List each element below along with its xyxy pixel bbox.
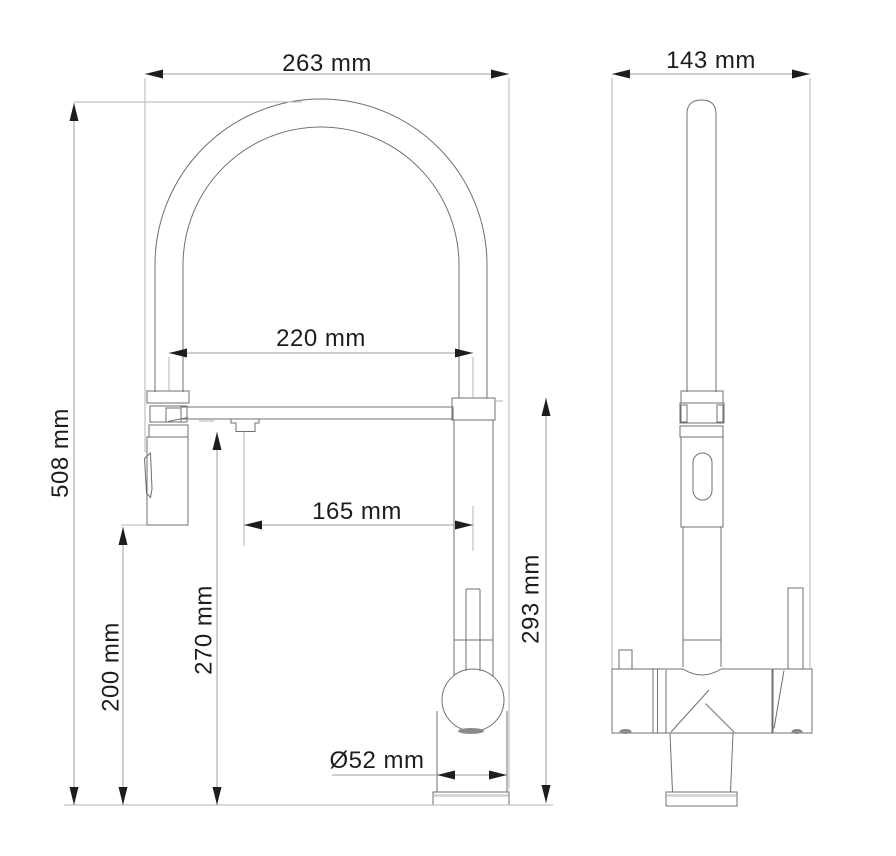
arrow-overall-width-left: [145, 70, 163, 79]
riser-tube-side: [687, 100, 716, 392]
arrow-base-diameter-left: [437, 771, 455, 780]
column-top-block: [452, 398, 495, 420]
label-spout-outlet-height: 270 mm: [191, 585, 218, 675]
arrow-overall-height-top: [70, 103, 79, 121]
ball-joint-shadow: [458, 728, 484, 734]
arrow-spout-reach-right: [455, 521, 473, 530]
faucet-dimension-drawing: 263 mm 143 mm 220 mm 165 mm 508 mm 200 m…: [0, 0, 896, 856]
spray-head-body-side: [681, 437, 723, 527]
base-plate-front: [433, 792, 509, 805]
arrow-body-height-bottom: [542, 785, 551, 803]
handle-lever-side: [788, 588, 803, 669]
dimension-labels: 263 mm 143 mm 220 mm 165 mm 508 mm 200 m…: [47, 47, 756, 774]
side-view: [612, 100, 812, 806]
arrow-hose-span-right: [455, 349, 473, 358]
drawing-canvas: 263 mm 143 mm 220 mm 165 mm 508 mm 200 m…: [0, 0, 896, 856]
arrow-head-bottom-bottom: [119, 787, 128, 805]
extension-lines: [64, 78, 810, 805]
label-spout-reach: 165 mm: [312, 498, 402, 525]
spray-button-slot: [693, 453, 712, 500]
handle-screw: [792, 729, 803, 734]
tee-cone-lines: [671, 690, 734, 732]
base-plate-side: [666, 792, 737, 806]
label-base-diameter: Ø52 mm: [329, 747, 424, 774]
left-port-block: [612, 669, 653, 733]
arrow-overall-height-bottom: [70, 787, 79, 805]
arrow-overall-width-right: [491, 70, 509, 79]
spout-arm: [181, 407, 453, 419]
label-head-bottom-height: 200 mm: [98, 622, 125, 712]
base-cylinder-front: [437, 711, 507, 792]
arrow-hose-span-left: [169, 349, 187, 358]
spray-trigger-lever: [145, 453, 153, 498]
tee-saddle: [683, 669, 721, 675]
spray-head-body: [147, 437, 188, 525]
column-lower-side: [683, 527, 721, 667]
handle-block-chamfer: [774, 671, 784, 729]
arrow-spout-outlet-bottom: [213, 787, 222, 805]
front-view: [145, 99, 510, 805]
left-port-stub: [619, 650, 632, 669]
spray-head-ring: [149, 425, 188, 437]
label-body-height: 293 mm: [518, 554, 545, 644]
tee-body-sides: [666, 669, 772, 733]
left-port-screw: [620, 729, 632, 734]
arrow-spout-reach-left: [244, 521, 262, 530]
arrow-body-height-top: [542, 398, 551, 416]
base-cylinder-side: [670, 733, 733, 792]
label-hose-span: 220 mm: [276, 325, 366, 352]
hose-arc-inner: [183, 127, 459, 398]
label-side-width: 143 mm: [666, 47, 756, 74]
spray-head-collar: [147, 391, 189, 403]
arrow-side-width-left: [612, 70, 630, 79]
clip-tab-right: [717, 405, 723, 422]
clip-tab-left: [681, 405, 687, 422]
front-shading: [458, 728, 484, 734]
arrow-head-bottom-top: [119, 527, 128, 545]
tee-joint-lines: [653, 669, 658, 733]
arrow-side-width-right: [792, 70, 810, 79]
arrow-spout-outlet-top: [213, 432, 222, 450]
label-overall-height: 508 mm: [47, 408, 74, 498]
ball-joint: [442, 669, 504, 731]
spray-head-collar-side: [681, 391, 723, 403]
aerator-outlet: [231, 419, 259, 432]
handle-rod-front: [466, 589, 480, 671]
arrow-base-diameter-right: [489, 771, 507, 780]
spray-head-ring-side: [680, 426, 723, 437]
label-overall-width: 263 mm: [282, 50, 372, 77]
